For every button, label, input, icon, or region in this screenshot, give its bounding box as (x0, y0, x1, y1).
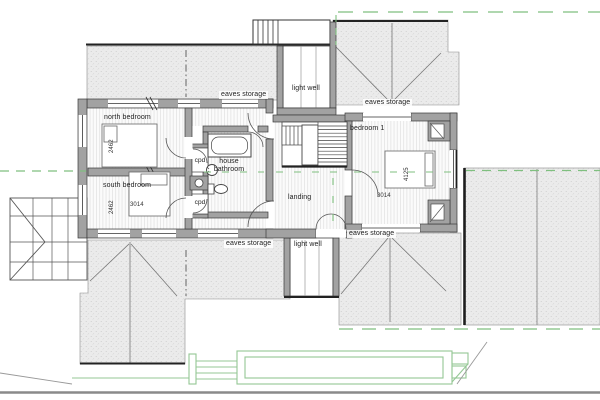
label-cpd-lower: cpd (192, 199, 208, 206)
label-landing: landing (288, 194, 311, 202)
bathtub (208, 134, 251, 157)
terrace-outer (237, 351, 452, 384)
roof-south-east (339, 233, 461, 325)
label-house-bathroom-line2: bathroom (206, 166, 252, 174)
label-eaves-storage-nw: eaves storage (219, 91, 268, 99)
annex-roof-west (10, 198, 87, 280)
staircase (282, 122, 347, 167)
niche-basin (195, 179, 203, 187)
rooflight-box (253, 20, 330, 44)
label-bedroom-1: bedroom 1 (350, 125, 384, 133)
dim-south-bedroom-width: 3014 (130, 202, 144, 209)
dim-north-bedroom-depth: 2462 (109, 139, 116, 153)
label-eaves-storage-ne: eaves storage (363, 99, 412, 107)
label-north-bedroom: north bedroom (104, 114, 151, 122)
label-light-well-south: light well (294, 241, 322, 249)
roof-south-west (80, 240, 290, 364)
floor-plan-canvas: eaves storage light well eaves storage n… (0, 0, 600, 400)
neighbour-roof-east (464, 168, 600, 325)
label-eaves-storage-se: eaves storage (347, 230, 396, 238)
dim-bedroom-1-length: 3014 (377, 193, 391, 200)
dim-south-bedroom-depth: 2462 (109, 200, 116, 214)
label-light-well-north: light well (292, 85, 320, 93)
terrace-inner (245, 357, 443, 378)
dim-bedroom-1-width: 4125 (404, 167, 411, 181)
toilet (208, 184, 228, 194)
label-house-bathroom-line1: house (206, 158, 252, 166)
label-house-bathroom: house bathroom (206, 158, 252, 174)
roof-north-east (333, 20, 459, 105)
label-south-bedroom: south bedroom (103, 182, 151, 190)
label-eaves-storage-sw: eaves storage (224, 240, 273, 248)
garden-steps (189, 354, 196, 384)
